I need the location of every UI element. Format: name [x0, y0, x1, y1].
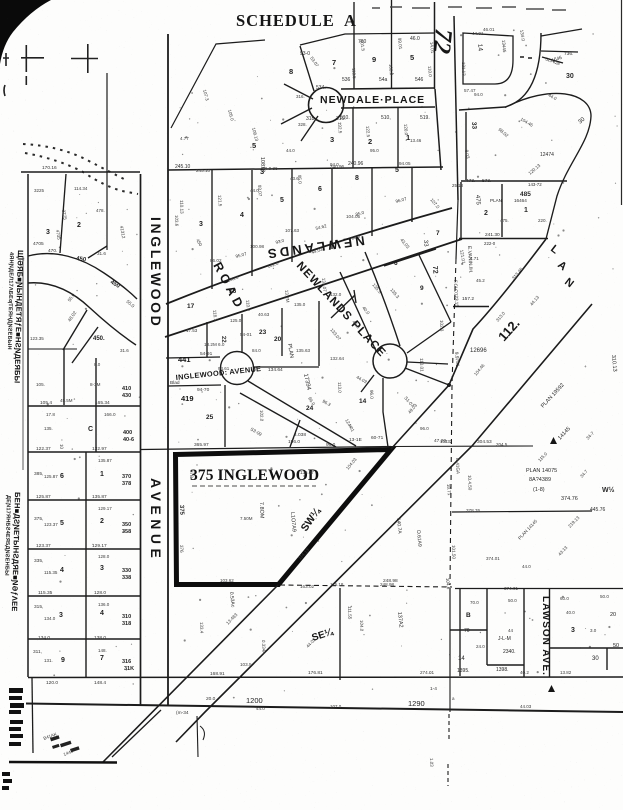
svg-text:50.0: 50.0: [600, 594, 609, 599]
svg-text:102.3: 102.3: [439, 320, 444, 332]
svg-text:132.5: 132.5: [337, 122, 343, 134]
svg-text:111.55: 111.55: [347, 606, 352, 620]
svg-text:245.10: 245.10: [196, 168, 210, 173]
svg-text:13.2M 6.0: 13.2M 6.0: [204, 342, 225, 347]
svg-text:103.5: 103.5: [240, 662, 252, 667]
svg-text:B.41GA: B.41GA: [455, 458, 461, 475]
svg-text:57.47: 57.47: [464, 88, 476, 93]
svg-text:110.13: 110.13: [179, 200, 184, 214]
svg-text:107.63: 107.63: [285, 228, 299, 233]
svg-text:54-01: 54-01: [240, 332, 252, 337]
svg-text:40.2: 40.2: [520, 670, 529, 675]
svg-text:132.64: 132.64: [330, 356, 344, 361]
svg-text:166.0: 166.0: [104, 412, 116, 417]
svg-text:60.0: 60.0: [560, 596, 569, 601]
svg-text:274.01: 274.01: [420, 670, 434, 675]
svg-text:10: 10: [59, 444, 64, 450]
svg-text:31.6: 31.6: [97, 251, 106, 256]
svg-text:376: 376: [179, 545, 184, 553]
svg-text:248.98: 248.98: [380, 582, 394, 587]
svg-text:104.05: 104.05: [346, 214, 360, 219]
svg-text:+: +: [584, 364, 587, 369]
svg-text:46.01: 46.01: [483, 27, 495, 32]
svg-text:105.: 105.: [36, 382, 45, 387]
svg-text:101.50: 101.50: [451, 545, 457, 560]
svg-text:240.96: 240.96: [330, 164, 344, 169]
svg-text:95.0: 95.0: [297, 175, 303, 185]
svg-text:163.02: 163.02: [300, 584, 314, 589]
svg-text:93.07: 93.07: [257, 185, 263, 197]
svg-text:8-3M: 8-3M: [90, 382, 101, 387]
svg-text:378.76: 378.76: [466, 508, 480, 513]
svg-text:44.01: 44.01: [472, 31, 484, 36]
svg-text:17.8: 17.8: [46, 412, 55, 417]
svg-text:100.98: 100.98: [250, 244, 264, 249]
svg-text:374.01: 374.01: [504, 586, 518, 591]
svg-text:110.01: 110.01: [419, 358, 424, 372]
svg-text:96.0: 96.0: [369, 390, 374, 400]
svg-text:135.63: 135.63: [296, 348, 310, 353]
svg-text:94.05: 94.05: [399, 161, 411, 166]
svg-text:94-0 36: 94-0 36: [262, 166, 278, 171]
svg-text:86.02: 86.02: [210, 258, 222, 263]
svg-text:10.4.50: 10.4.50: [467, 475, 473, 491]
svg-text:121.5: 121.5: [217, 195, 223, 207]
